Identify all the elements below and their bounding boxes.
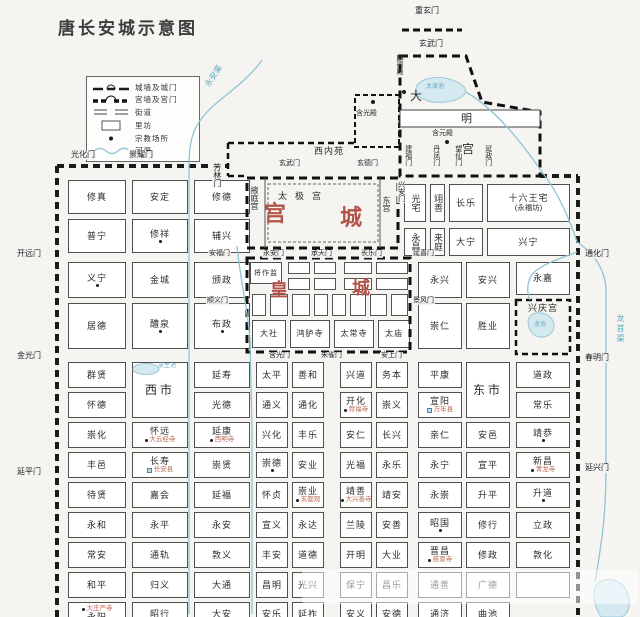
linde-hall-label: 麟德殿 [396, 54, 403, 75]
palace-city-label: 城 [340, 207, 362, 229]
religious-site-dot [371, 100, 375, 104]
yongan-canal-label: 永安渠 [204, 64, 224, 88]
imperial-city-label: 皇 [270, 281, 288, 299]
religious-site-dot [402, 90, 406, 94]
palace-city-label: 宫 [264, 203, 286, 225]
yeting-palace-label: 掖庭宫 [250, 186, 258, 210]
daming-palace-label: 宫 [462, 143, 474, 155]
taiji-palace-label: 太极宫 [278, 192, 329, 201]
longshou-canal-label: 龙首渠 [616, 314, 624, 344]
religious-site-dot [445, 140, 449, 144]
taiye-pool-label: 太液池 [426, 84, 444, 90]
hanguang-hall-label: 含光殿 [356, 110, 377, 117]
east-palace-label: 东宫 [382, 196, 390, 212]
dragon-pool-label: 龙池 [534, 322, 546, 328]
fangsheng-pond-label: 放生池 [158, 363, 176, 369]
daming-palace-label: 明 [461, 114, 472, 125]
changan-map: 唐长安城示意图 城墙及城门 宫墙及宫门 街道 里坊 [0, 0, 640, 617]
daming-palace-label: 大 [410, 90, 422, 102]
labels-layer: 西内苑掖庭宫东宫太极宫宫城皇城大明宫含元殿麟德殿含光殿太液池放生池龙池龙首渠永安… [0, 0, 640, 617]
hanyuan-hall-label: 含元殿 [432, 130, 453, 137]
west-inner-park-label: 西内苑 [314, 147, 344, 156]
imperial-city-label: 城 [352, 279, 370, 297]
watermark-overlay [302, 570, 638, 604]
